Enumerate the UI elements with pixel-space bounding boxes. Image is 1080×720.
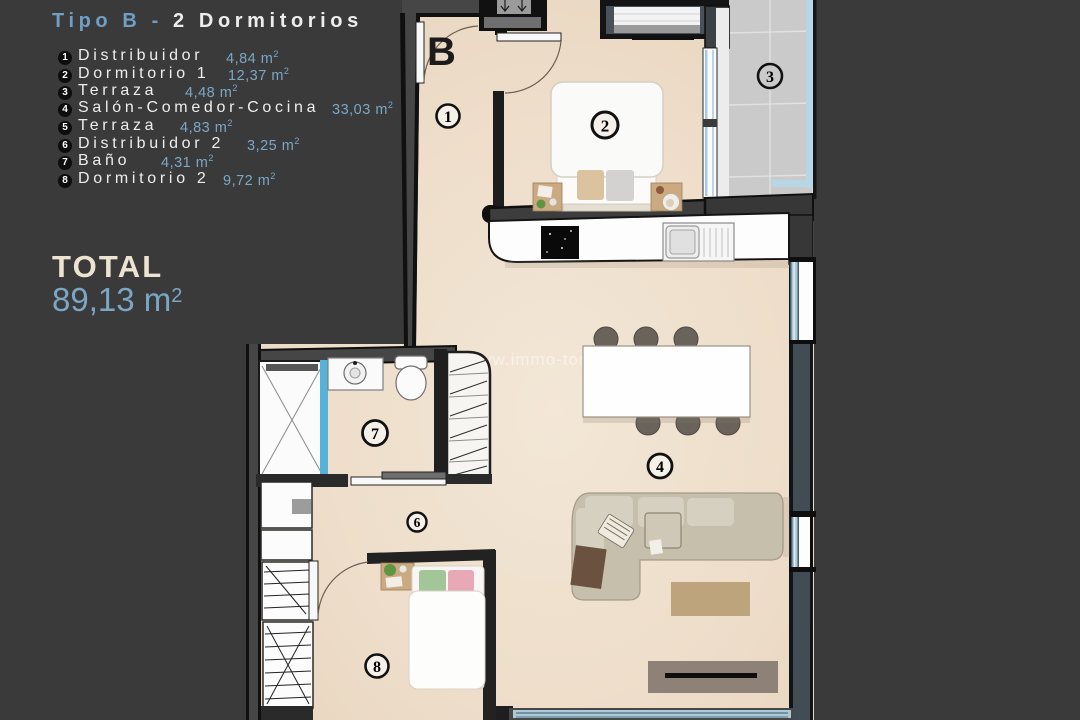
svg-text:4: 4 (656, 459, 664, 476)
svg-text:6: 6 (414, 515, 421, 530)
svg-text:2: 2 (601, 117, 610, 136)
svg-text:1: 1 (444, 109, 452, 126)
svg-text:7: 7 (371, 426, 379, 443)
svg-text:3: 3 (766, 69, 774, 86)
svg-text:8: 8 (373, 659, 381, 676)
svg-text:B: B (427, 30, 456, 74)
